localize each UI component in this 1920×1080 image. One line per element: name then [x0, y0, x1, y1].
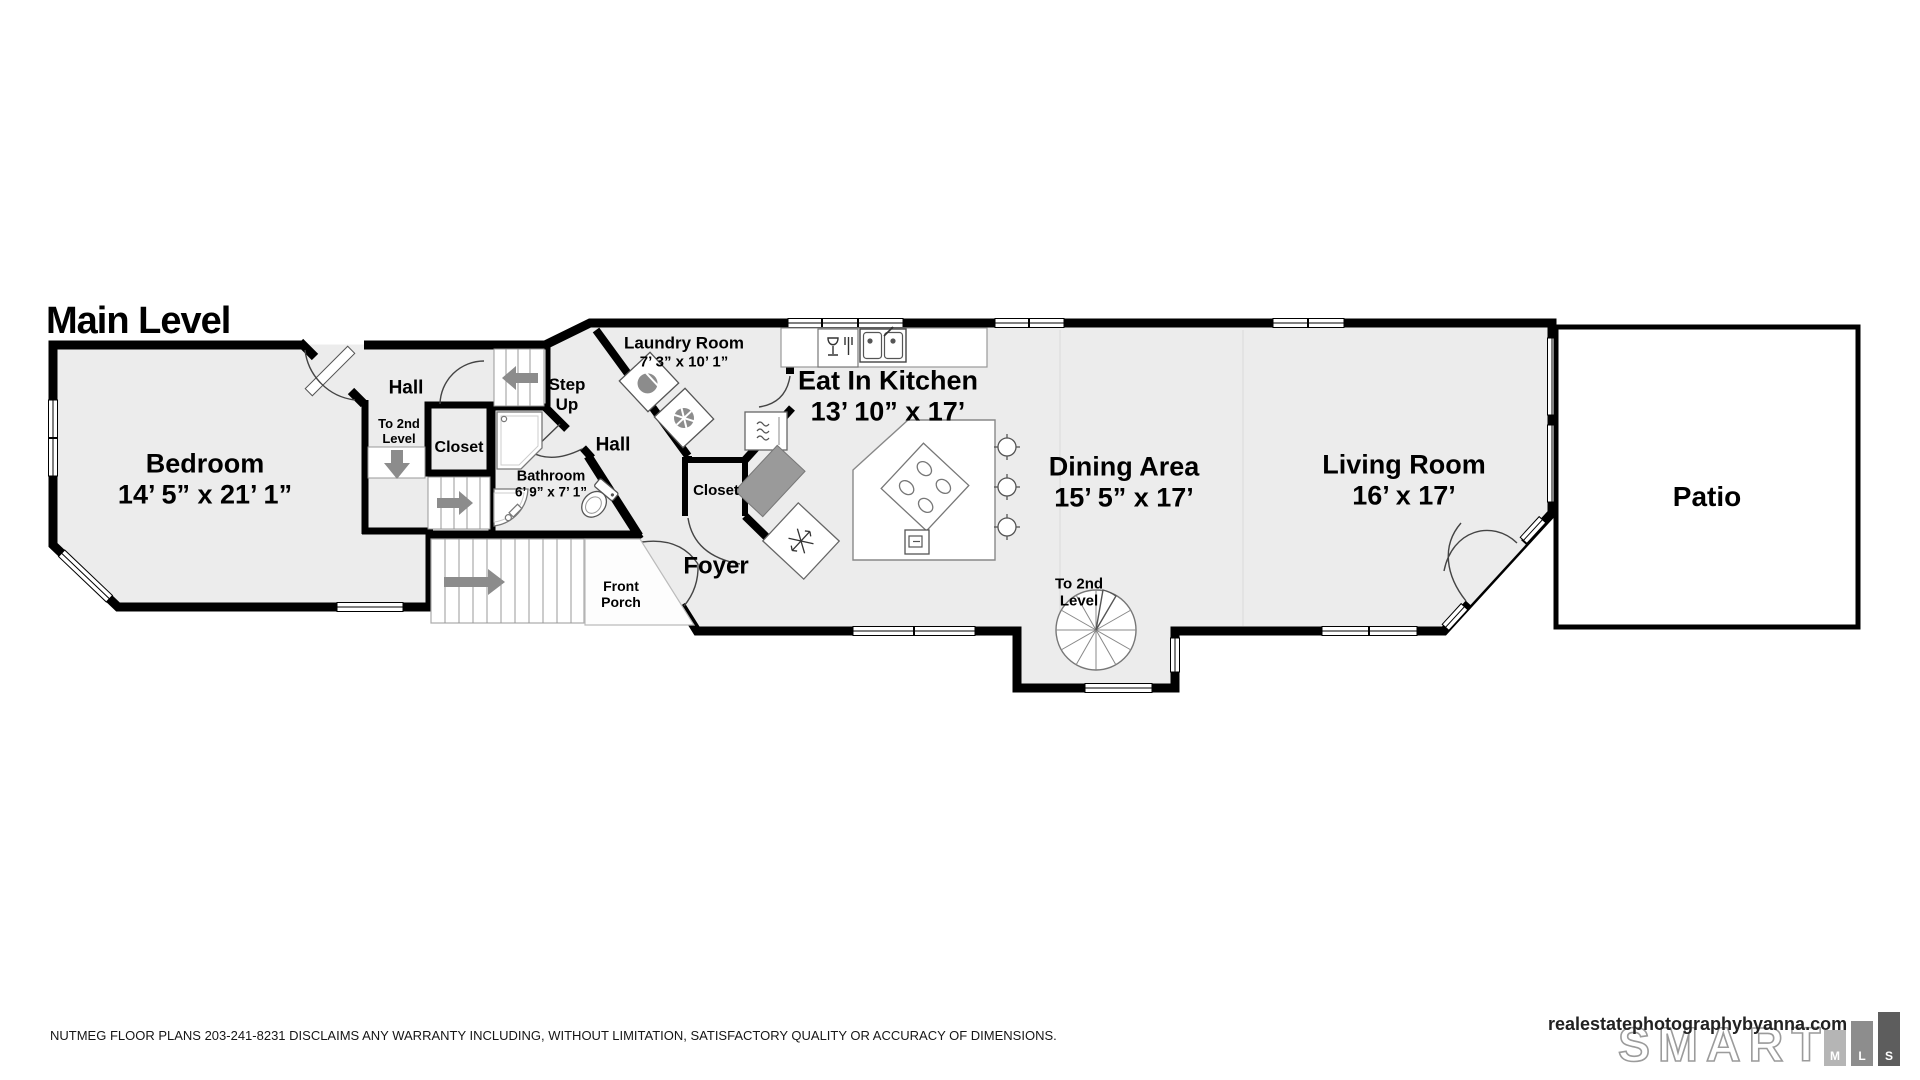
island-outlet-icon [905, 530, 929, 554]
staircase-step-up [494, 349, 544, 406]
mls-bar-s: S [1878, 1012, 1900, 1066]
window [995, 319, 1064, 328]
dishwasher-icon [818, 329, 858, 367]
front-porch-steps [431, 539, 584, 623]
mls-bar-l: L [1851, 1021, 1873, 1066]
staircase-landing [368, 447, 425, 479]
window [1322, 627, 1417, 636]
floor-plan-page: Main Level Bedroom 14’ 5” x 21’ 1” Hall … [0, 0, 1920, 1080]
window [788, 319, 903, 328]
window [337, 603, 403, 612]
mls-bars-icon: M L S [1824, 1010, 1900, 1066]
brand-domain-text: realestatephotographybyanna.com [1548, 1014, 1847, 1035]
patio-outline [1556, 327, 1858, 627]
brand-block: SMART realestatephotographybyanna.com M … [1540, 1008, 1910, 1072]
mls-bar-m: M [1824, 1030, 1846, 1066]
kitchen-sink-icon [860, 327, 906, 362]
bar-stools [994, 434, 1020, 540]
staircase-to-2nd-level [428, 477, 490, 529]
disclaimer-text: NUTMEG FLOOR PLANS 203-241-8231 DISCLAIM… [50, 1028, 1057, 1043]
window [853, 627, 975, 636]
page-title: Main Level [46, 300, 230, 343]
wall-oven-icon [745, 412, 787, 450]
window [1085, 684, 1152, 693]
window [1171, 638, 1180, 672]
window [1273, 319, 1344, 328]
spiral-staircase [1056, 590, 1136, 670]
window [49, 400, 58, 476]
floor-plan-drawing [0, 0, 1920, 1080]
